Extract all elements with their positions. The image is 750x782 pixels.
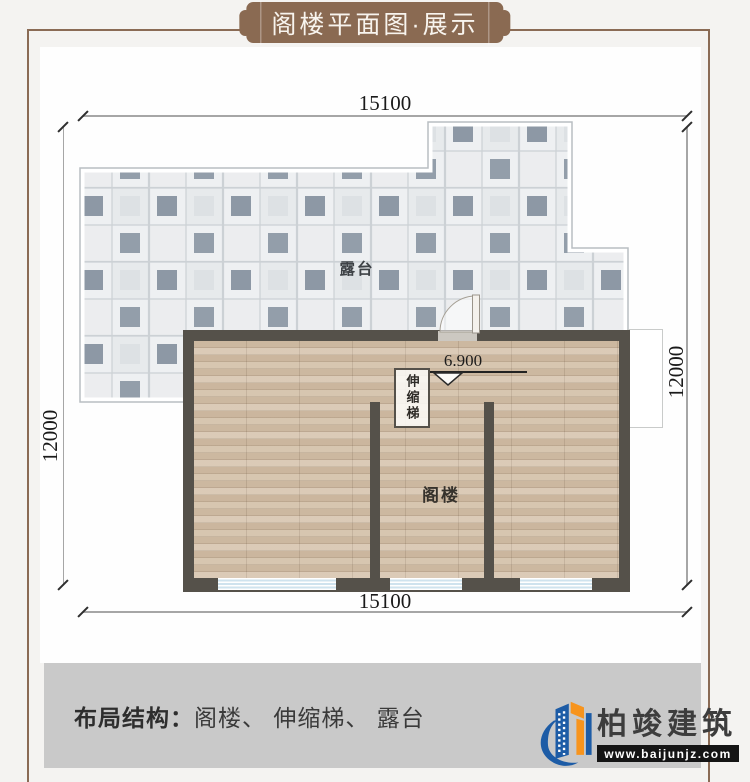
brand-website: www.baijunjz.com (597, 745, 739, 762)
frame-right-line (708, 29, 710, 782)
window (218, 578, 336, 590)
layout-summary-value: 阁楼、 伸缩梯、 露台 (194, 699, 425, 733)
ladder-label: 伸缩梯 (403, 374, 422, 422)
dimension-top-value: 15100 (83, 91, 687, 116)
building-logo-icon (533, 696, 597, 772)
level-marker-triangle (432, 372, 468, 388)
banner-plaque: 阁楼平面图·展示 (246, 2, 503, 43)
attic-label: 阁楼 (410, 481, 472, 506)
dimension-line-left (63, 127, 65, 585)
terrace-label: 露台 (330, 257, 384, 279)
level-marker-value: 6.900 (426, 351, 500, 371)
door-swing (425, 285, 495, 345)
frame-left-line (27, 29, 29, 782)
window (520, 578, 592, 590)
interior-wall (370, 402, 380, 578)
interior-wall (484, 402, 494, 578)
brand-name: 柏竣建筑 (597, 699, 737, 743)
dimension-left-value: 12000 (38, 386, 58, 486)
layout-summary-label: 布局结构： (74, 699, 194, 733)
side-bay-box (627, 329, 663, 428)
frame-top-left-line (27, 29, 255, 31)
frame-top-right-line (495, 29, 710, 31)
page-title: 阁楼平面图·展示 (260, 1, 489, 45)
dimension-right-value: 12000 (664, 322, 684, 422)
dimension-bottom-value: 15100 (83, 589, 687, 614)
window (390, 578, 462, 590)
brand-logo: 柏竣建筑 www.baijunjz.com (533, 693, 738, 768)
ladder-box: 伸缩梯 (394, 368, 430, 428)
page-title-banner: 阁楼平面图·展示 (246, 2, 503, 43)
